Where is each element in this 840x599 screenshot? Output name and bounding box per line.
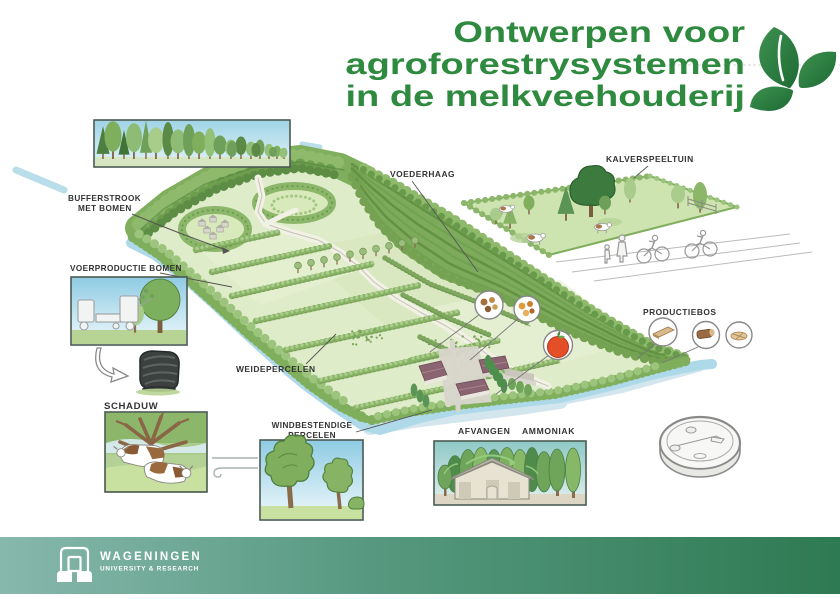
svg-text:Ontwerpen voor: Ontwerpen voor <box>453 16 745 49</box>
svg-text:WEIDEPERCELEN: WEIDEPERCELEN <box>236 364 316 374</box>
svg-text:BUFFERSTROOK: BUFFERSTROOK <box>68 194 141 203</box>
svg-text:SCHADUW: SCHADUW <box>104 401 159 412</box>
svg-text:WAGENINGEN: WAGENINGEN <box>100 551 202 563</box>
svg-text:WINDBESTENDIGE: WINDBESTENDIGE <box>272 421 353 430</box>
svg-text:KALVERSPEELTUIN: KALVERSPEELTUIN <box>606 154 694 164</box>
svg-text:MET BOMEN: MET BOMEN <box>78 204 132 213</box>
svg-text:AMMONIAK: AMMONIAK <box>522 426 575 436</box>
svg-text:VOEDERHAAG: VOEDERHAAG <box>390 169 455 179</box>
svg-text:agroforestrysystemen: agroforestrysystemen <box>345 48 745 81</box>
svg-text:VOERPRODUCTIE BOMEN: VOERPRODUCTIE BOMEN <box>70 264 182 273</box>
svg-text:PRODUCTIEBOS: PRODUCTIEBOS <box>643 307 716 317</box>
svg-text:in de melkveehouderij: in de melkveehouderij <box>345 80 745 113</box>
svg-text:UNIVERSITY & RESEARCH: UNIVERSITY & RESEARCH <box>100 566 199 573</box>
svg-text:AFVANGEN: AFVANGEN <box>458 426 510 436</box>
